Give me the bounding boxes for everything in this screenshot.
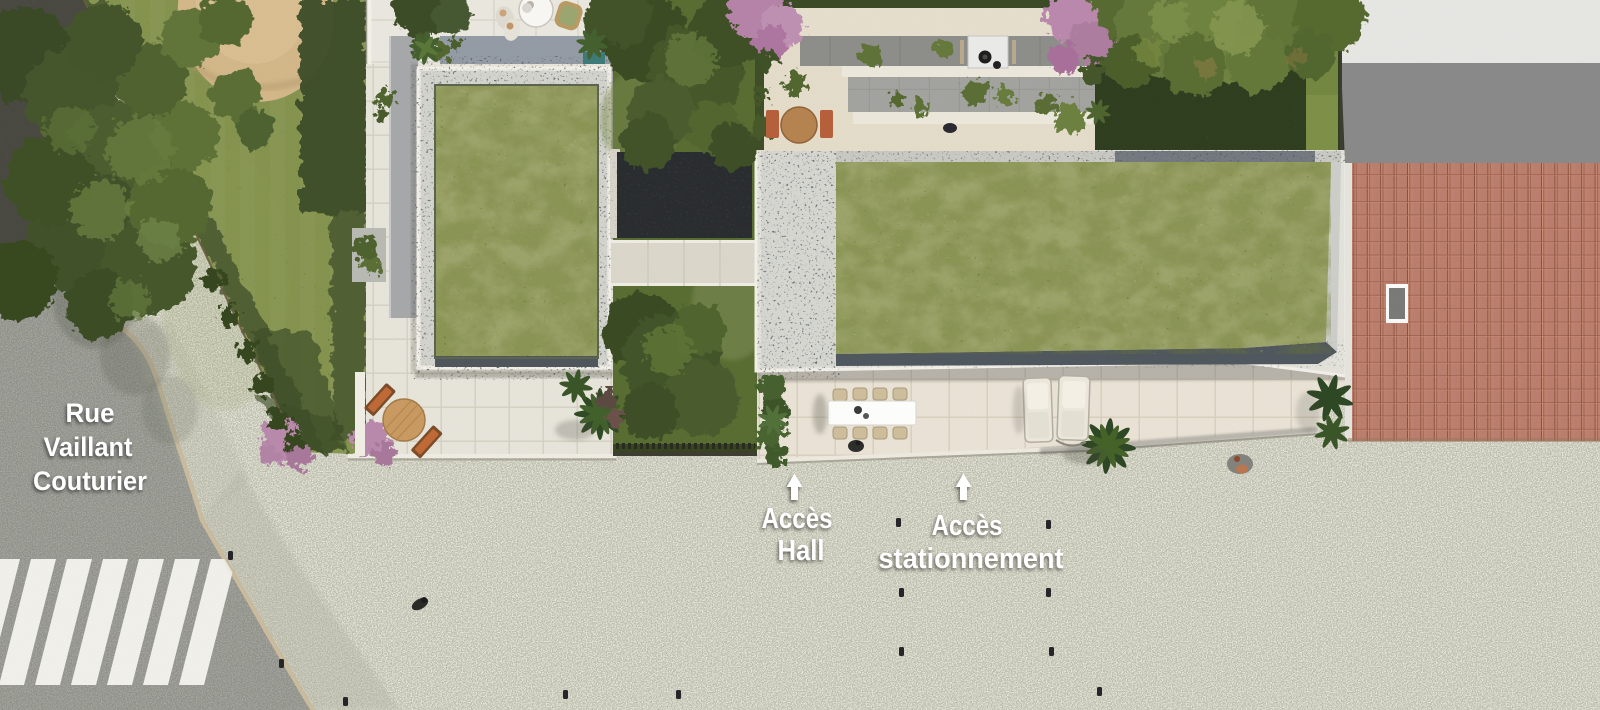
- svg-text:Couturier: Couturier: [33, 466, 147, 496]
- svg-text:Hall: Hall: [778, 535, 825, 567]
- svg-text:Vaillant: Vaillant: [44, 432, 133, 462]
- svg-text:Rue: Rue: [66, 398, 115, 428]
- svg-text:stationnement: stationnement: [879, 543, 1064, 575]
- svg-text:Accès: Accès: [932, 510, 1003, 542]
- svg-text:Accès: Accès: [762, 503, 833, 535]
